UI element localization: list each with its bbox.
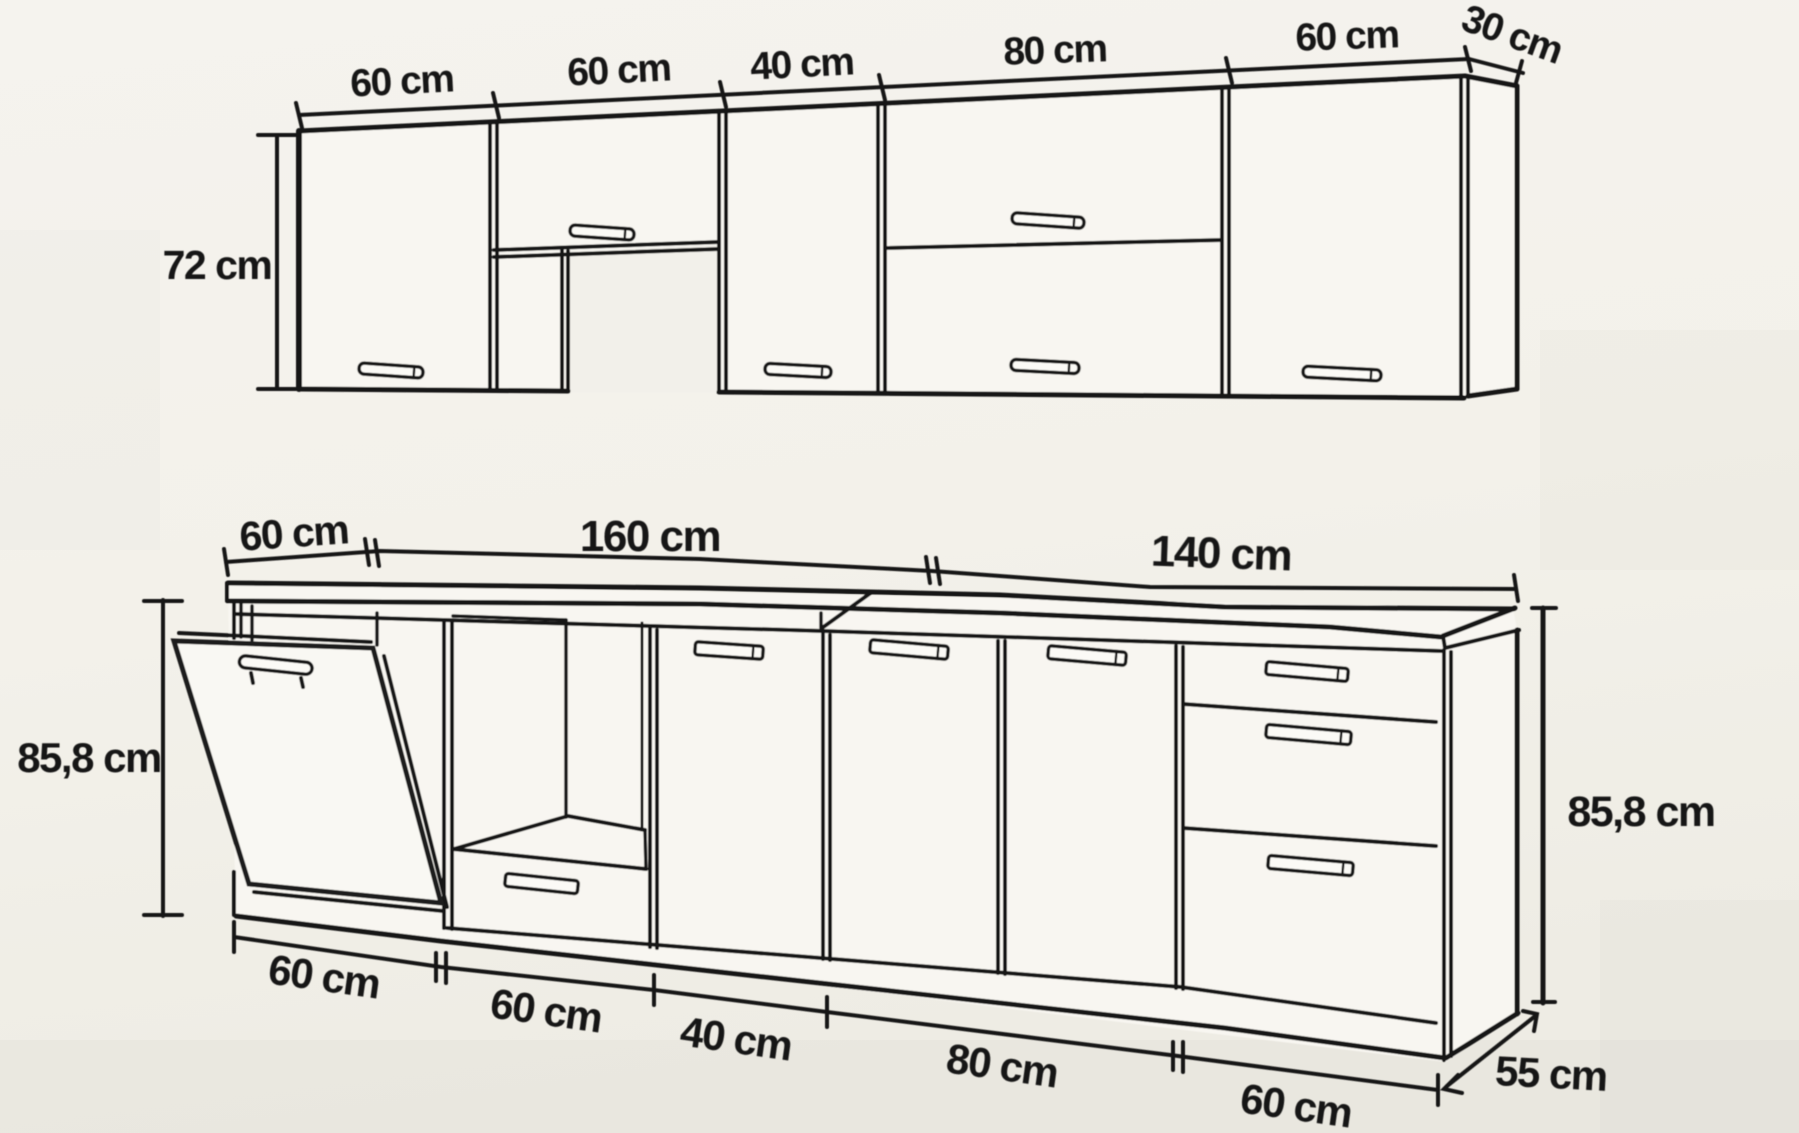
svg-text:85,8 cm: 85,8 cm — [17, 734, 161, 781]
svg-text:85,8 cm: 85,8 cm — [1567, 788, 1714, 836]
svg-text:60 cm: 60 cm — [349, 57, 454, 105]
svg-text:140 cm: 140 cm — [1150, 527, 1292, 581]
svg-text:160 cm: 160 cm — [580, 512, 720, 561]
svg-text:72 cm: 72 cm — [163, 242, 272, 288]
svg-text:40 cm: 40 cm — [749, 40, 854, 88]
svg-text:60 cm: 60 cm — [238, 506, 350, 559]
svg-text:60 cm: 60 cm — [1295, 13, 1400, 60]
svg-text:55 cm: 55 cm — [1494, 1047, 1608, 1100]
svg-text:60 cm: 60 cm — [566, 46, 671, 94]
svg-text:80 cm: 80 cm — [1003, 27, 1108, 74]
